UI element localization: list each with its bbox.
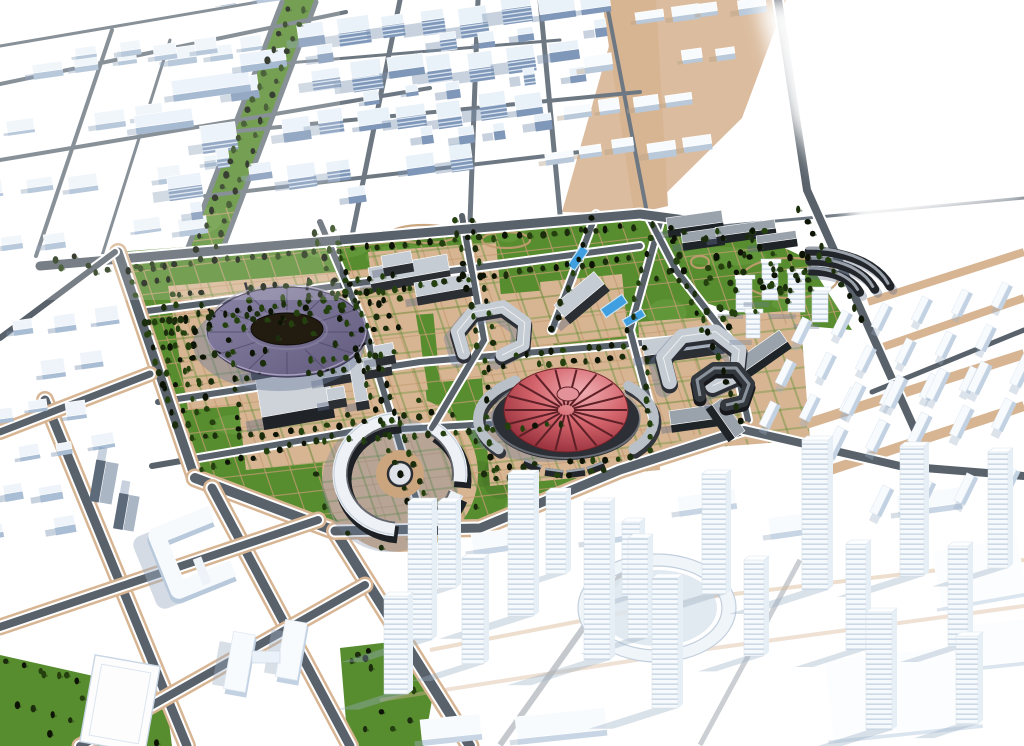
top-left-haze	[0, 0, 340, 300]
city-masterplan-render	[0, 0, 1024, 746]
city-masterplan-svg	[0, 0, 1024, 746]
